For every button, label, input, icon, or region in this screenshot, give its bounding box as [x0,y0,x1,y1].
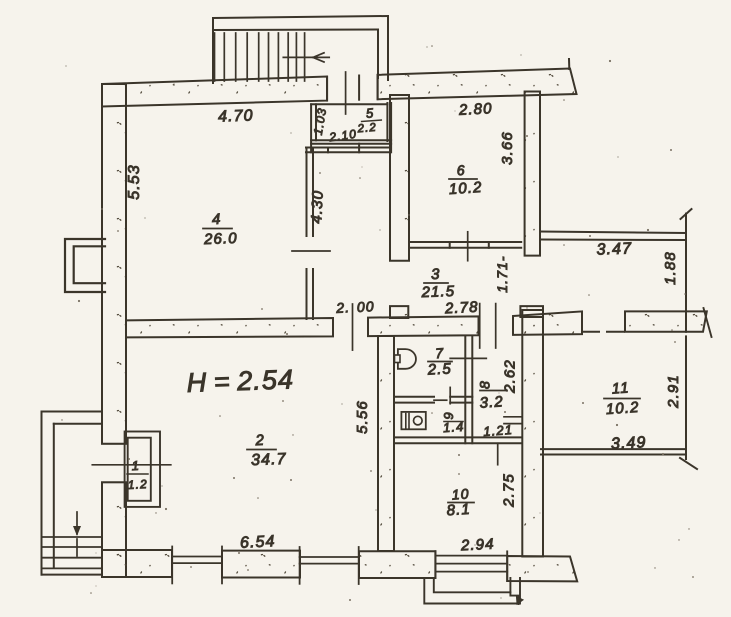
svg-text:3.66: 3.66 [499,131,516,165]
svg-text:1.2: 1.2 [127,477,148,492]
svg-text:8: 8 [477,380,493,389]
svg-text:11: 11 [611,379,630,397]
svg-text:2.2: 2.2 [356,122,377,136]
svg-text:4: 4 [212,211,222,228]
svg-text:2.78: 2.78 [444,299,479,318]
svg-text:4.70: 4.70 [218,107,254,125]
svg-text:1.71-: 1.71- [494,255,510,292]
svg-text:5.56: 5.56 [354,400,371,434]
svg-text:5: 5 [365,105,375,121]
svg-text:4.30: 4.30 [308,190,327,224]
svg-text:2.: 2. [335,299,351,316]
svg-text:3: 3 [431,266,441,283]
svg-text:2.5: 2.5 [426,360,452,378]
svg-text:10.2: 10.2 [605,399,640,418]
svg-text:2.94: 2.94 [460,536,495,555]
svg-text:26.0: 26.0 [203,230,238,248]
svg-text:1.4: 1.4 [443,419,465,435]
svg-text:2.62: 2.62 [502,359,519,394]
svg-text:3.49: 3.49 [611,434,647,453]
svg-text:2.80: 2.80 [458,100,493,119]
svg-text:3.2: 3.2 [479,393,504,412]
svg-text:8.1: 8.1 [446,501,471,520]
svg-text:2.75: 2.75 [501,473,518,508]
svg-text:3.47: 3.47 [596,240,632,258]
svg-text:6.54: 6.54 [240,533,276,552]
svg-text:6: 6 [456,162,466,178]
svg-text:1: 1 [131,458,140,473]
svg-text:2.91: 2.91 [665,374,682,409]
svg-text:21.5: 21.5 [420,283,455,301]
svg-text:H = 2.54: H = 2.54 [186,364,294,398]
svg-text:2: 2 [254,432,265,450]
svg-text:34.7: 34.7 [251,451,287,469]
svg-text:10.2: 10.2 [448,179,483,198]
svg-text:5.53: 5.53 [126,164,143,200]
svg-text:7: 7 [435,345,445,361]
svg-text:1.88: 1.88 [662,251,679,285]
svg-text:1.21: 1.21 [483,422,514,439]
svg-text:00: 00 [356,298,375,315]
svg-text:9: 9 [441,411,456,419]
